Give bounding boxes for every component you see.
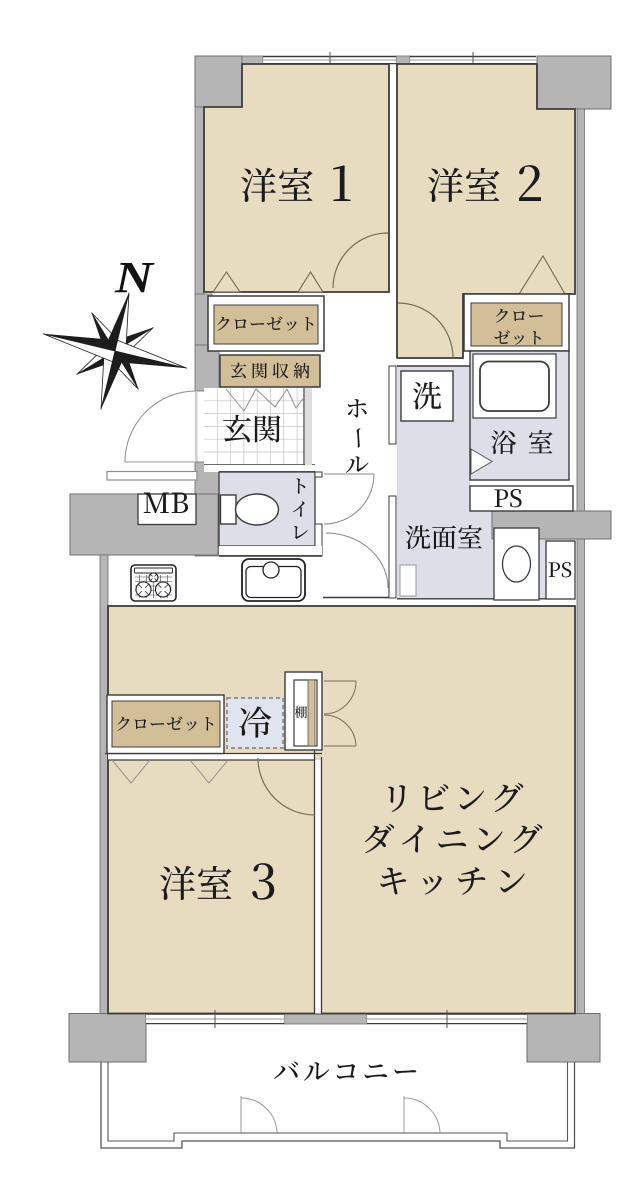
svg-text:N: N bbox=[114, 253, 156, 302]
